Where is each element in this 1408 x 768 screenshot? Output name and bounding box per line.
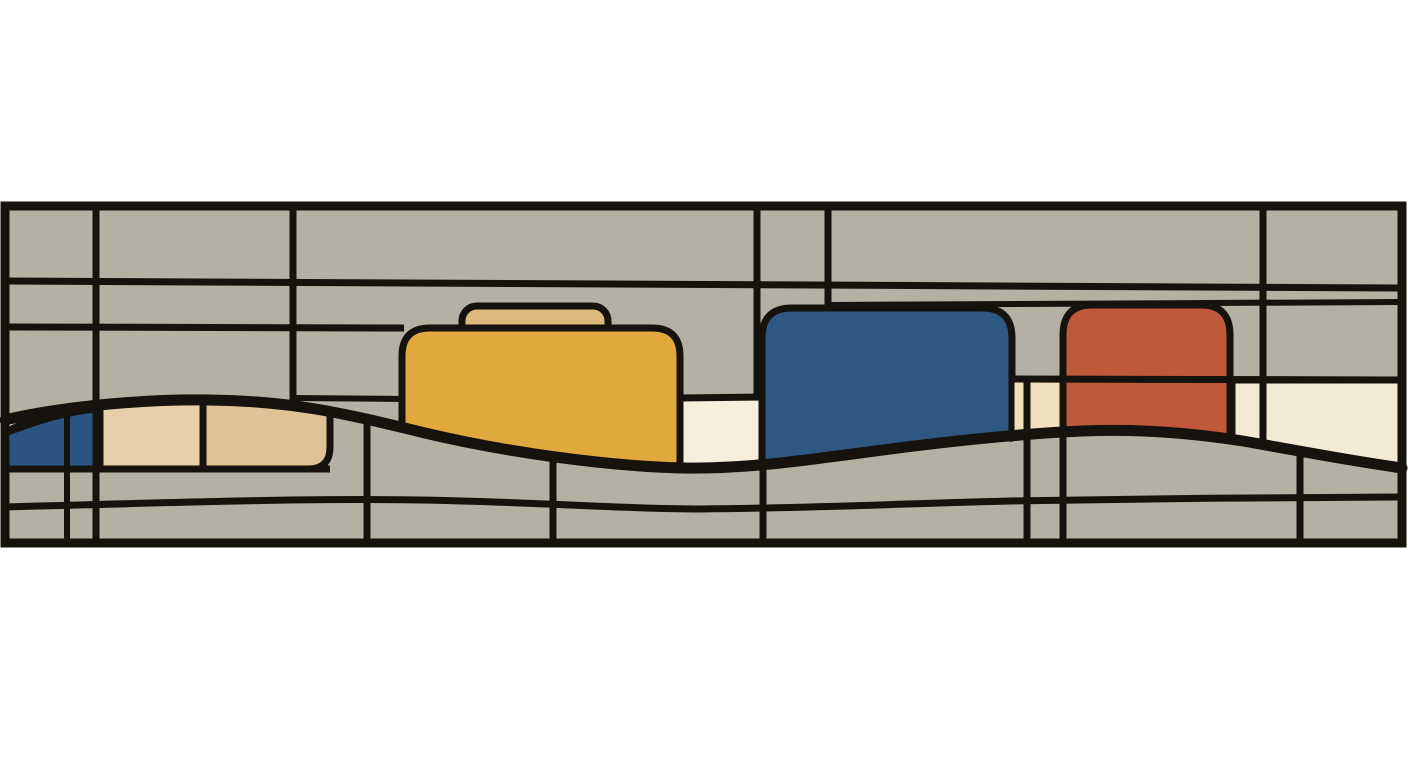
abstract-artwork	[0, 0, 1408, 768]
grid-line-mid-left-segment	[293, 398, 404, 399]
cream-cell-middle	[680, 397, 762, 468]
tan-cell-left	[100, 401, 203, 469]
grid-line-cream-top-right	[1012, 379, 1402, 380]
red-block	[1063, 305, 1230, 440]
grid-line-second-right	[828, 302, 1402, 305]
grid-line-second-left	[5, 327, 404, 328]
frieze-canvas	[0, 0, 1408, 768]
